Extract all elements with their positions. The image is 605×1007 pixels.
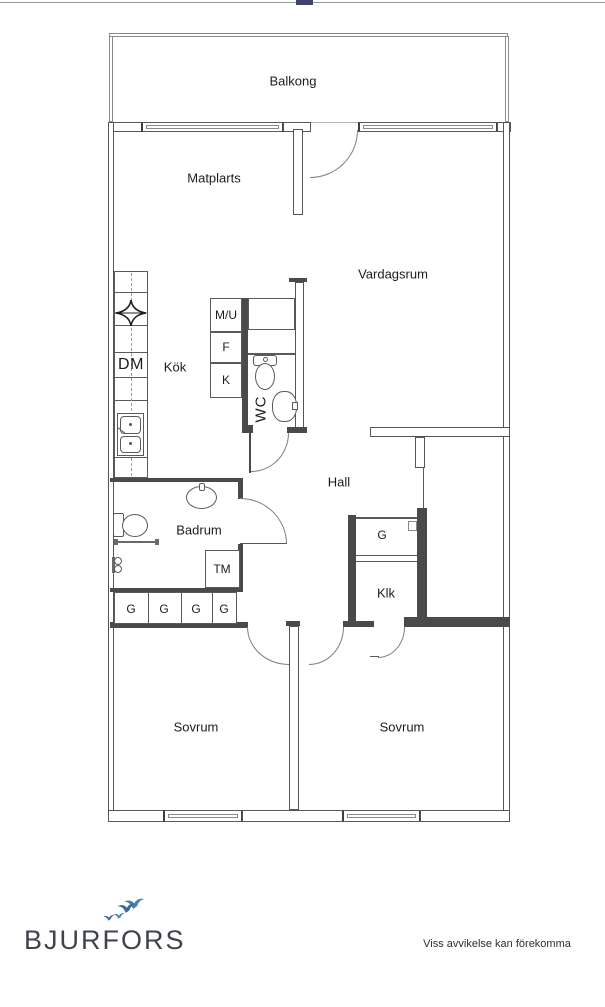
wall-badrum-top — [110, 478, 243, 482]
balcony-rail-right — [505, 36, 509, 122]
disclaimer-text: Viss avvikelse kan förekomma — [423, 938, 571, 950]
wall-bottom-seg1 — [108, 810, 164, 822]
closet-shelf — [356, 561, 417, 562]
unit-label-micro-oven: M/U — [215, 308, 237, 322]
sink-drain — [129, 423, 132, 426]
shower-knob — [114, 557, 122, 565]
wall-matplats-vardagsrum-pier — [293, 129, 303, 215]
unit-label-wardrobe: G — [191, 602, 200, 616]
toilet-button — [263, 357, 268, 362]
unit-label-wardrobe: G — [159, 602, 168, 616]
wall-hall-right-lower — [417, 508, 427, 621]
room-label-badrum: Badrum — [176, 523, 222, 538]
room-label-klk: Klk — [377, 586, 395, 601]
window-sill — [363, 125, 493, 129]
wall-hall-right-upper — [415, 437, 425, 468]
grab-bar-end — [155, 539, 159, 545]
wall-exterior-right — [503, 122, 510, 822]
wall-badrum-jamb-upper — [238, 478, 243, 499]
room-label-vardagsrum: Vardagsrum — [358, 267, 428, 282]
door-arc-sovrum-right — [309, 627, 344, 665]
wardrobe-divider — [148, 592, 149, 624]
room-label-kok: Kök — [164, 360, 186, 375]
window-sovrum-left — [163, 810, 243, 822]
window-sill — [146, 125, 279, 129]
wall-bedroom-divider — [289, 626, 299, 810]
window-matplats — [141, 122, 284, 132]
wall-klk-left — [348, 515, 356, 622]
window-vardagsrum — [358, 122, 498, 132]
wall-vardagsrum-bottom — [370, 427, 510, 437]
toilet-bowl — [255, 363, 275, 390]
balcony-rail-top — [109, 33, 508, 37]
door-leaf-klk — [370, 656, 379, 657]
room-label-wc: WC — [253, 396, 270, 423]
window-sill — [168, 814, 238, 818]
unit-label-freezer: F — [222, 340, 229, 354]
room-label-hall: Hall — [328, 475, 350, 490]
room-label-sovrum-left: Sovrum — [174, 720, 219, 735]
wardrobe-divider — [181, 592, 182, 624]
sink-drain — [129, 442, 132, 445]
washbasin-tap — [292, 402, 298, 410]
closet-hinge — [408, 521, 417, 531]
stove-star-icon — [115, 300, 147, 326]
shower-knob — [114, 565, 122, 573]
unit-label-wardrobe: G — [126, 602, 135, 616]
unit-label-wardrobe-hall: G — [377, 528, 386, 542]
unit-label-dishwasher: DM — [118, 356, 144, 374]
door-leaf-badrum — [240, 543, 287, 544]
floorplan-page: Balkong — [0, 0, 605, 1007]
wall-wc-bottom-left — [242, 425, 253, 433]
scrollbar-thumb[interactable] — [296, 0, 313, 5]
wardrobe-divider — [212, 592, 213, 624]
balcony-rail-left — [109, 36, 113, 122]
closet-shelf — [356, 555, 417, 556]
door-arc-balcony — [310, 130, 358, 178]
room-label-sovrum-right: Sovrum — [380, 720, 425, 735]
grab-bar-end — [114, 539, 118, 545]
wall-wc-bottom-right — [287, 427, 307, 433]
window-sill — [347, 814, 416, 818]
toilet-bowl — [122, 514, 148, 537]
washbasin-tap — [199, 483, 205, 491]
door-arc-wc — [251, 433, 289, 472]
wall-bottom-seg2 — [242, 810, 343, 822]
wall-hall-right-thin — [423, 468, 424, 508]
unit-label-washing-machine: TM — [213, 562, 230, 576]
brand-logo-text: BJURFORS — [24, 925, 186, 956]
kitchen-worktop — [248, 298, 295, 330]
room-label-matplats: Matplarts — [187, 171, 240, 186]
unit-label-fridge: K — [222, 373, 230, 387]
window-sovrum-right — [342, 810, 421, 822]
door-arc-sovrum-left — [247, 627, 289, 665]
birds-logo-icon — [102, 896, 150, 928]
wall-bedroom-right-top — [404, 617, 510, 627]
grab-bar — [117, 541, 157, 543]
unit-label-wardrobe: G — [219, 602, 228, 616]
wall-bottom-seg3 — [420, 810, 510, 822]
closet-top — [356, 517, 417, 519]
room-label-balkong: Balkong — [270, 74, 317, 89]
door-arc-badrum — [240, 498, 287, 544]
door-arc-klk — [378, 627, 405, 658]
